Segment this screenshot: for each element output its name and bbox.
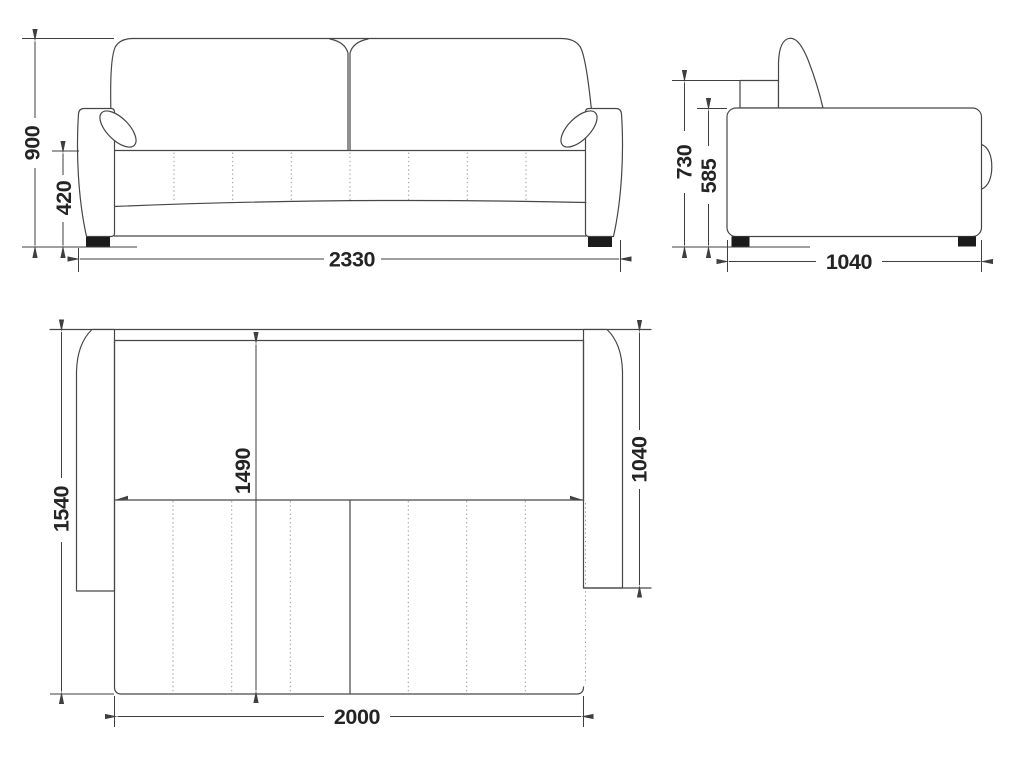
side-foot-right	[958, 237, 976, 247]
top-armrest-left	[77, 330, 115, 592]
dim-top-armrest-length: 1040	[628, 436, 652, 483]
backrest-frame	[740, 81, 779, 109]
backrest-seam-left	[330, 39, 348, 150]
bed-left-bottom-edge	[115, 341, 584, 695]
seat-front-edge	[115, 200, 586, 206]
fold-notch-left	[115, 496, 128, 500]
dim-top-bed-length: 1490	[231, 447, 255, 494]
dim-top-unfolded-depth: 1540	[50, 485, 74, 532]
sofa-technical-drawing: 900 420 2330 730 585	[0, 0, 1024, 768]
front-foot-left	[86, 237, 110, 247]
back-cushion-side	[779, 38, 824, 108]
top-view: 1540 1490 1040 2000	[50, 330, 652, 730]
dim-front-seat-height: 420	[52, 180, 76, 215]
side-foot-left	[732, 237, 750, 247]
front-foot-right	[588, 237, 612, 247]
dim-front-overall-height: 900	[21, 125, 45, 160]
side-view: 730 585 1040	[672, 38, 992, 274]
arm-pillow-edge	[982, 145, 992, 190]
fold-notch-right	[570, 496, 583, 500]
top-sofa	[50, 330, 651, 695]
dim-side-overall-depth: 1040	[826, 250, 873, 274]
drawing-sheet: 900 420 2330 730 585	[0, 0, 1024, 768]
top-armrest-right	[584, 330, 623, 589]
seat-seam-lines	[174, 153, 526, 202]
backrest-seam-right	[350, 39, 368, 150]
side-sofa	[727, 38, 992, 246]
dim-side-armrest-height: 585	[697, 158, 721, 193]
backrest-outline	[111, 39, 596, 151]
dim-front-overall-width: 2330	[329, 248, 376, 272]
dim-side-overall-height: 730	[673, 144, 697, 179]
dim-top-bed-width: 2000	[334, 705, 381, 729]
front-sofa	[77, 39, 622, 248]
front-view: 900 420 2330	[21, 39, 623, 273]
sofa-body-side	[727, 108, 982, 237]
mattress-seam-lines	[173, 501, 525, 693]
